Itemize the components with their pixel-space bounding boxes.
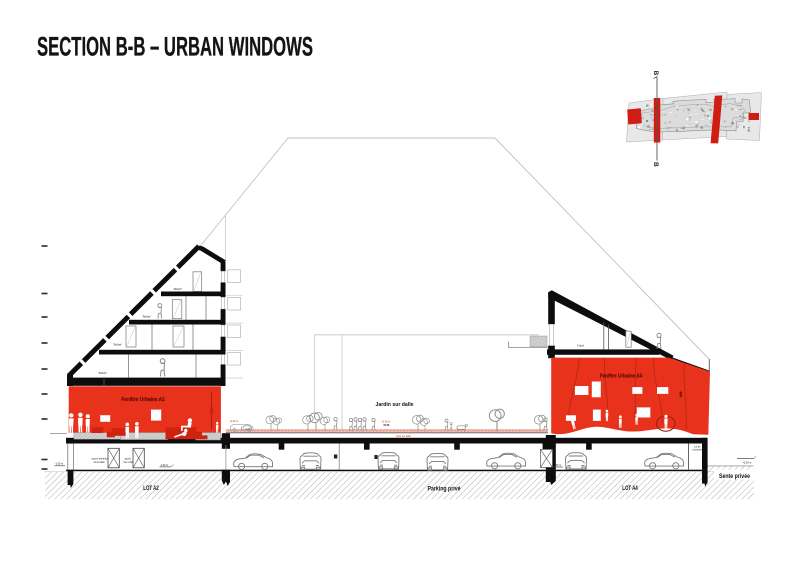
- svg-text:5 faud: 5 faud: [577, 345, 585, 348]
- svg-text:60 M: 60 M: [384, 423, 390, 427]
- svg-text:-1.00 m: -1.00 m: [55, 463, 63, 466]
- svg-text:LOT A2: LOT A2: [143, 485, 159, 492]
- svg-text:box côté: box côté: [124, 461, 134, 464]
- svg-text:7x1 m²: 7x1 m²: [143, 315, 151, 319]
- svg-text:+0.00 m: +0.00 m: [230, 420, 239, 423]
- svg-text:7x1 m²: 7x1 m²: [99, 371, 107, 375]
- svg-text:privatisée: privatisée: [693, 448, 704, 451]
- svg-text:Sente privée: Sente privée: [719, 473, 750, 480]
- svg-text:-1.00 m: -1.00 m: [160, 464, 168, 467]
- svg-text:LOT A4: LOT A4: [622, 485, 638, 492]
- svg-text:7x1 m²: 7x1 m²: [114, 342, 122, 346]
- svg-text:Fenêtre Urbaine A4: Fenêtre Urbaine A4: [600, 373, 643, 379]
- svg-text:-1.00 m: -1.00 m: [553, 464, 561, 467]
- svg-text:Fenêtre Urbaine A2: Fenêtre Urbaine A2: [121, 397, 165, 403]
- svg-text:SECTION B-B – URBAN WINDOWS: SECTION B-B – URBAN WINDOWS: [37, 32, 313, 62]
- svg-text:sous dalle: sous dalle: [94, 461, 106, 464]
- svg-text:Parking privé: Parking privé: [428, 486, 461, 493]
- svg-text:Lot de: Lot de: [694, 446, 701, 449]
- svg-text:prise sur dalle: prise sur dalle: [396, 435, 412, 438]
- svg-text:7x1 m²: 7x1 m²: [174, 287, 182, 291]
- svg-text:Jardin sur dalle: Jardin sur dalle: [376, 402, 414, 408]
- svg-text:B: B: [652, 71, 659, 76]
- svg-text:+2.00 m: +2.00 m: [743, 462, 752, 465]
- svg-text:B: B: [652, 162, 659, 167]
